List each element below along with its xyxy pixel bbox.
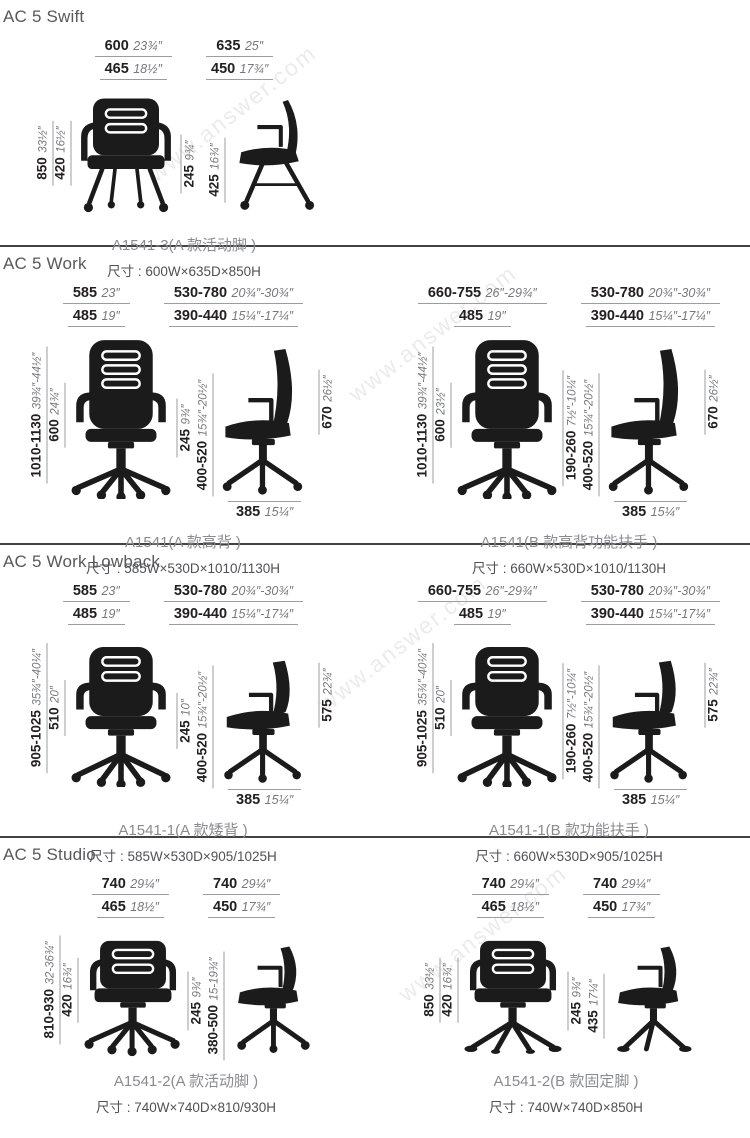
- dimension-inch: 15¼″-17¼″: [648, 607, 710, 621]
- dimension-mm: 245: [178, 720, 193, 743]
- dimension-label: 385 15¼″: [228, 789, 301, 809]
- dimension-inch: 20″: [436, 686, 448, 703]
- dimension-inch: 20¾″-30¾″: [232, 286, 294, 300]
- chair-side-view: [599, 349, 705, 499]
- dimension-label-vertical: 510 20″: [433, 629, 451, 787]
- dimension-mm: 740: [482, 876, 506, 892]
- dimension-inch: 10″: [181, 699, 193, 716]
- figure-a1541-3: 600 23¾″ 465 18½″ 635 25″ 450 17¾″ 850 3…: [34, 27, 334, 280]
- top-dimensions: 740 29¼″ 465 18½″ 740 29¼″ 450 17¾″: [406, 875, 726, 918]
- dimension-mm: 435: [586, 1011, 601, 1034]
- top-dimensions: 600 23¾″ 465 18½″ 635 25″ 450 17¾″: [34, 37, 334, 80]
- dimension-mm: 670: [320, 406, 335, 429]
- dimension-inch: 19″: [487, 607, 505, 621]
- dimension-mm: 530-780: [174, 583, 227, 599]
- dimension-label: 530-780 20¾″-30¾″: [581, 284, 720, 304]
- dimension-inch: 26½″: [709, 375, 721, 401]
- dimension-mm: 450: [211, 61, 235, 77]
- dimension-inch: 32-36¾″: [45, 941, 57, 984]
- section-ac5-studio: AC 5 Studio 740 29¼″ 465 18½″ 740 29¼″ 4…: [0, 838, 750, 1136]
- chair-side-view: [224, 941, 330, 1058]
- dimension-inch: 29¼″: [130, 877, 159, 891]
- dimension-mm: 400-520: [581, 441, 596, 491]
- dimension-inch: 15¾″-20½″: [198, 672, 210, 729]
- model-caption: A1541-2(A 款活动脚 ): [26, 1070, 346, 1091]
- dimension-mm: 660-755: [428, 583, 481, 599]
- dimension-mm: 585: [73, 285, 97, 301]
- chair-side-view: [213, 349, 319, 499]
- dimension-label: 465 18½″: [100, 60, 167, 80]
- dimension-label: 530-780 20¾″-30¾″: [581, 582, 720, 602]
- dimension-label-vertical: 190-260 7½″-10¼″: [563, 629, 581, 787]
- dimension-label: 390-440 15¼″-17¼″: [586, 605, 715, 625]
- section-title: AC 5 Work Lowback: [0, 545, 750, 572]
- dimension-mm: 600: [47, 419, 62, 442]
- dimension-inch: 9¾″: [572, 977, 584, 997]
- side-top-dims: 530-780 20¾″-30¾″ 390-440 15¼″-17¼″: [164, 284, 303, 327]
- dimension-label-vertical: 850 33½″: [422, 922, 440, 1058]
- chair-side-view: [225, 96, 333, 222]
- dimension-inch: 17¼″: [589, 980, 601, 1006]
- dimension-label-vertical: 400-520 15¾″-20½″: [195, 331, 213, 499]
- dimension-inch: 17¾″: [242, 900, 271, 914]
- front-top-dims: 585 23″ 485 19″: [63, 284, 130, 327]
- front-top-dims: 660-755 26″-29¾″ 485 19″: [418, 582, 547, 625]
- section-title: AC 5 Work: [0, 247, 750, 274]
- dimension-inch: 15-19¾″: [209, 958, 221, 1001]
- dimension-inch: 9¾″: [181, 405, 193, 425]
- dimension-label: 485 19″: [68, 307, 125, 327]
- dimension-mm: 905-1025: [29, 710, 44, 767]
- chair-front-view: [71, 95, 181, 222]
- dimension-inch: 15¼″: [651, 505, 680, 519]
- dimension-label-vertical: 905-1025 35¾″-40¼″: [415, 629, 433, 787]
- front-top-dims: 600 23¾″ 465 18½″: [95, 37, 172, 80]
- dimension-label: 450 17¾″: [206, 60, 273, 80]
- dimension-mm: 420: [440, 994, 455, 1017]
- dimension-label: 485 19″: [68, 605, 125, 625]
- dimension-mm: 400-520: [581, 733, 596, 783]
- front-top-dims: 740 29¼″ 465 18½″: [92, 875, 169, 918]
- dimension-inch: 22¾″: [323, 669, 335, 695]
- dimension-mm: 380-500: [206, 1005, 221, 1055]
- dimension-inch: 15¼″: [265, 505, 294, 519]
- dimension-label-vertical: 190-260 7½″-10¼″: [563, 331, 581, 499]
- dimension-label: 450 17¾″: [588, 898, 655, 918]
- dimension-inch: 20¾″-30¾″: [648, 584, 710, 598]
- dimension-mm: 385: [236, 504, 260, 520]
- top-dimensions: 585 23″ 485 19″ 530-780 20¾″-30¾″ 390-44…: [18, 284, 348, 327]
- dimension-mm: 245: [182, 165, 197, 188]
- dimension-label-vertical: 600 24¾″: [47, 331, 65, 499]
- dimension-label: 660-755 26″-29¾″: [418, 284, 547, 304]
- dimension-inch: 23″: [101, 584, 119, 598]
- dimension-inch: 9¾″: [185, 141, 197, 161]
- bottom-dimension-row: 385 15¼″: [18, 499, 348, 519]
- model-caption: A1541-2(B 款固定脚 ): [406, 1070, 726, 1091]
- chair-side-view: [213, 642, 319, 787]
- dimension-label-vertical: 420 16¾″: [60, 922, 78, 1058]
- dimension-inch: 16¾″: [63, 963, 75, 989]
- dimension-mm: 585: [73, 583, 97, 599]
- section-ac5-work: AC 5 Work 585 23″ 485 19″ 530-780 20¾″-3…: [0, 247, 750, 543]
- dimension-mm: 635: [216, 38, 240, 54]
- bottom-dimension-row: 385 15¼″: [404, 499, 734, 519]
- top-dimensions: 585 23″ 485 19″ 530-780 20¾″-30¾″ 390-44…: [18, 582, 348, 625]
- front-top-dims: 585 23″ 485 19″: [63, 582, 130, 625]
- dimension-mm: 425: [207, 174, 222, 197]
- dimension-inch: 24¾″: [50, 388, 62, 414]
- dimension-inch: 20¾″-30¾″: [648, 286, 710, 300]
- dimension-mm: 740: [102, 876, 126, 892]
- chair-front-view: [78, 939, 188, 1058]
- dimension-label: 465 18½″: [97, 898, 164, 918]
- dimension-mm: 420: [53, 157, 68, 180]
- dimension-label: 385 15¼″: [614, 501, 687, 521]
- dimension-mm: 190-260: [564, 431, 579, 481]
- dimension-mm: 390-440: [591, 308, 644, 324]
- dimension-inch: 18½″: [510, 900, 539, 914]
- dimension-inch: 23¾″: [133, 39, 162, 53]
- side-top-dims: 740 29¼″ 450 17¾″: [583, 875, 660, 918]
- dimension-inch: 7½″-10¼″: [567, 376, 579, 426]
- dimension-inch: 15¼″-17¼″: [232, 309, 294, 323]
- figure-a1541-2-a: 740 29¼″ 465 18½″ 740 29¼″ 450 17¾″ 810-…: [26, 865, 346, 1116]
- dimension-mm: 390-440: [174, 308, 227, 324]
- dimension-label-vertical: 670 26½″: [705, 331, 723, 499]
- dimension-mm: 600: [433, 419, 448, 442]
- section-ac5-work-lowback: AC 5 Work Lowback 585 23″ 485 19″ 530-78…: [0, 545, 750, 836]
- dimension-label: 635 25″: [206, 37, 273, 57]
- figure-a1541-b: 660-755 26″-29¾″ 485 19″ 530-780 20¾″-30…: [404, 274, 734, 577]
- dimension-label-vertical: 850 33½″: [35, 84, 53, 222]
- chair-front-view: [451, 340, 563, 499]
- side-top-dims: 635 25″ 450 17¾″: [206, 37, 273, 80]
- dimension-mm: 245: [569, 1002, 584, 1025]
- dimension-label: 740 29¼″: [92, 875, 169, 895]
- dimension-label: 530-780 20¾″-30¾″: [164, 284, 303, 304]
- dimension-mm: 510: [47, 707, 62, 730]
- dimension-label-vertical: 600 23½″: [433, 331, 451, 499]
- dimension-mm: 1010-1130: [29, 414, 44, 478]
- dimension-inch: 17¾″: [622, 900, 651, 914]
- dimension-inch: 15¾″-20½″: [198, 380, 210, 437]
- dimension-mm: 190-260: [564, 723, 579, 773]
- dimension-label: 740 29¼″: [203, 875, 280, 895]
- dimension-mm: 390-440: [174, 606, 227, 622]
- dimension-mm: 575: [320, 700, 335, 723]
- dimension-label: 390-440 15¼″-17¼″: [169, 307, 298, 327]
- side-top-dims: 530-780 20¾″-30¾″ 390-440 15¼″-17¼″: [581, 582, 720, 625]
- dimension-label: 740 29¼″: [472, 875, 549, 895]
- dimension-label-vertical: 1010-1130 39¾″-44½″: [29, 331, 47, 499]
- dimension-inch: 33½″: [425, 963, 437, 989]
- dimension-inch: 20″: [50, 686, 62, 703]
- dimension-label: 385 15¼″: [228, 501, 301, 521]
- dimension-label: 585 23″: [63, 582, 130, 602]
- dimension-mm: 385: [622, 792, 646, 808]
- dimension-inch: 23½″: [436, 388, 448, 414]
- dimension-mm: 450: [593, 899, 617, 915]
- figure-a1541-1-a: 585 23″ 485 19″ 530-780 20¾″-30¾″ 390-44…: [18, 572, 348, 865]
- dimension-label-vertical: 575 22¾″: [705, 629, 723, 787]
- side-top-dims: 530-780 20¾″-30¾″ 390-440 15¼″-17¼″: [581, 284, 720, 327]
- dimension-mm: 465: [482, 899, 506, 915]
- dimension-mm: 485: [73, 308, 97, 324]
- dimension-label-vertical: 1010-1130 39¾″-44½″: [415, 331, 433, 499]
- model-caption: A1541-1(B 款功能扶手 ): [404, 819, 734, 840]
- dimension-mm: 390-440: [591, 606, 644, 622]
- chair-front-view: [458, 939, 568, 1058]
- dimension-label-vertical: 245 9¾″: [177, 331, 195, 499]
- top-dimensions: 660-755 26″-29¾″ 485 19″ 530-780 20¾″-30…: [404, 284, 734, 327]
- dimension-inch: 25″: [245, 39, 263, 53]
- dimension-mm: 810-930: [42, 989, 57, 1039]
- dimension-mm: 485: [459, 606, 483, 622]
- dimension-label-vertical: 245 9¾″: [568, 922, 586, 1058]
- dimension-inch: 22¾″: [709, 669, 721, 695]
- dimension-mm: 245: [178, 429, 193, 452]
- top-dimensions: 660-755 26″-29¾″ 485 19″ 530-780 20¾″-30…: [404, 582, 734, 625]
- dimension-mm: 530-780: [174, 285, 227, 301]
- chair-side-view: [604, 941, 710, 1058]
- dimension-inch: 33½″: [38, 126, 50, 152]
- dimension-label: 485 19″: [454, 307, 511, 327]
- spec-sheet-page: www.answer.com www.answer.com www.answer…: [0, 0, 750, 1138]
- size-caption: 尺寸 : 740W×740D×850H: [406, 1096, 726, 1116]
- dimension-mm: 465: [105, 61, 129, 77]
- dimension-inch: 19″: [101, 607, 119, 621]
- dimension-inch: 15¾″-20½″: [584, 672, 596, 729]
- dimension-inch: 17¾″: [240, 62, 269, 76]
- dimension-mm: 850: [422, 994, 437, 1017]
- dimension-label-vertical: 400-520 15¾″-20½″: [581, 331, 599, 499]
- size-caption: 尺寸 : 740W×740D×810/930H: [26, 1096, 346, 1116]
- top-dimensions: 740 29¼″ 465 18½″ 740 29¼″ 450 17¾″: [26, 875, 346, 918]
- dimension-mm: 905-1025: [415, 710, 430, 767]
- dimension-inch: 7½″-10¼″: [567, 668, 579, 718]
- dimension-label-vertical: 575 22¾″: [319, 629, 337, 787]
- dimension-mm: 385: [622, 504, 646, 520]
- dimension-mm: 420: [60, 994, 75, 1017]
- dimension-label: 530-780 20¾″-30¾″: [164, 582, 303, 602]
- dimension-inch: 23″: [101, 286, 119, 300]
- dimension-label-vertical: 245 9¾″: [188, 922, 206, 1058]
- dimension-inch: 29¼″: [622, 877, 651, 891]
- dimension-mm: 850: [35, 157, 50, 180]
- section-ac5-swift: AC 5 Swift 600 23¾″ 465 18½″ 635 25″ 450…: [0, 0, 750, 245]
- section-title: AC 5 Studio: [0, 838, 750, 865]
- dimension-inch: 29¼″: [242, 877, 271, 891]
- dimension-mm: 465: [102, 899, 126, 915]
- dimension-inch: 26″-29¾″: [486, 584, 537, 598]
- dimension-inch: 19″: [487, 309, 505, 323]
- dimension-mm: 740: [593, 876, 617, 892]
- dimension-inch: 18½″: [133, 62, 162, 76]
- dimension-inch: 35¾″-40¼″: [418, 649, 430, 706]
- dimension-label-vertical: 420 16½″: [53, 84, 71, 222]
- side-top-dims: 740 29¼″ 450 17¾″: [203, 875, 280, 918]
- dimension-label-vertical: 400-520 15¾″-20½″: [195, 629, 213, 787]
- dimension-label: 740 29¼″: [583, 875, 660, 895]
- dimension-label-vertical: 380-500 15-19¾″: [206, 922, 224, 1058]
- dimension-inch: 16¾″: [443, 963, 455, 989]
- dimension-mm: 575: [706, 700, 721, 723]
- dimension-label-vertical: 670 26½″: [319, 331, 337, 499]
- dimension-label: 390-440 15¼″-17¼″: [169, 605, 298, 625]
- dimension-label: 450 17¾″: [208, 898, 275, 918]
- side-top-dims: 530-780 20¾″-30¾″ 390-440 15¼″-17¼″: [164, 582, 303, 625]
- figure-a1541-1-b: 660-755 26″-29¾″ 485 19″ 530-780 20¾″-30…: [404, 572, 734, 865]
- dimension-label-vertical: 425 16¾″: [207, 84, 225, 222]
- dimension-inch: 20¾″-30¾″: [232, 584, 294, 598]
- dimension-mm: 485: [459, 308, 483, 324]
- dimension-inch: 18½″: [130, 900, 159, 914]
- chair-side-view: [599, 642, 705, 787]
- chair-front-view: [65, 647, 177, 787]
- dimension-inch: 9¾″: [192, 977, 204, 997]
- dimension-label-vertical: 245 10″: [177, 629, 195, 787]
- dimension-label: 390-440 15¼″-17¼″: [586, 307, 715, 327]
- dimension-mm: 530-780: [591, 285, 644, 301]
- dimension-label-vertical: 810-930 32-36¾″: [42, 922, 60, 1058]
- front-top-dims: 660-755 26″-29¾″ 485 19″: [418, 284, 547, 327]
- dimension-inch: 16¾″: [210, 143, 222, 169]
- dimension-inch: 19″: [101, 309, 119, 323]
- dimension-mm: 600: [105, 38, 129, 54]
- dimension-label: 485 19″: [454, 605, 511, 625]
- dimension-mm: 245: [189, 1002, 204, 1025]
- dimension-inch: 15¾″-20½″: [584, 380, 596, 437]
- dimension-inch: 15¼″: [651, 793, 680, 807]
- dimension-label: 385 15¼″: [614, 789, 687, 809]
- dimension-inch: 26″-29¾″: [486, 286, 537, 300]
- dimension-inch: 15¼″: [265, 793, 294, 807]
- bottom-dimension-row: 385 15¼″: [404, 787, 734, 807]
- dimension-inch: 29¼″: [510, 877, 539, 891]
- dimension-label-vertical: 905-1025 35¾″-40¼″: [29, 629, 47, 787]
- dimension-mm: 530-780: [591, 583, 644, 599]
- dimension-label: 465 18½″: [477, 898, 544, 918]
- dimension-mm: 400-520: [195, 441, 210, 491]
- model-caption: A1541-1(A 款矮背 ): [18, 819, 348, 840]
- dimension-label-vertical: 510 20″: [47, 629, 65, 787]
- chair-front-view: [451, 647, 563, 787]
- dimension-inch: 16½″: [56, 126, 68, 152]
- dimension-label-vertical: 400-520 15¾″-20½″: [581, 629, 599, 787]
- dimension-mm: 400-520: [195, 733, 210, 783]
- dimension-mm: 670: [706, 406, 721, 429]
- dimension-mm: 485: [73, 606, 97, 622]
- dimension-label-vertical: 245 9¾″: [181, 84, 199, 222]
- dimension-label: 600 23¾″: [95, 37, 172, 57]
- dimension-mm: 385: [236, 792, 260, 808]
- dimension-mm: 510: [433, 707, 448, 730]
- figure-a1541-a: 585 23″ 485 19″ 530-780 20¾″-30¾″ 390-44…: [18, 274, 348, 577]
- dimension-inch: 39¾″-44½″: [418, 352, 430, 409]
- dimension-inch: 35¾″-40¼″: [32, 649, 44, 706]
- figure-a1541-2-b: 740 29¼″ 465 18½″ 740 29¼″ 450 17¾″ 850 …: [406, 865, 726, 1116]
- section-title: AC 5 Swift: [0, 0, 750, 27]
- front-top-dims: 740 29¼″ 465 18½″: [472, 875, 549, 918]
- dimension-inch: 26½″: [323, 375, 335, 401]
- dimension-mm: 450: [213, 899, 237, 915]
- dimension-mm: 740: [213, 876, 237, 892]
- dimension-inch: 15¼″-17¼″: [648, 309, 710, 323]
- dimension-label-vertical: 420 16¾″: [440, 922, 458, 1058]
- dimension-inch: 39¾″-44½″: [32, 352, 44, 409]
- dimension-label-vertical: 435 17¼″: [586, 922, 604, 1058]
- bottom-dimension-row: 385 15¼″: [18, 787, 348, 807]
- dimension-mm: 660-755: [428, 285, 481, 301]
- dimension-label: 585 23″: [63, 284, 130, 304]
- chair-front-view: [65, 340, 177, 499]
- dimension-label: 660-755 26″-29¾″: [418, 582, 547, 602]
- dimension-mm: 1010-1130: [415, 414, 430, 478]
- dimension-inch: 15¼″-17¼″: [232, 607, 294, 621]
